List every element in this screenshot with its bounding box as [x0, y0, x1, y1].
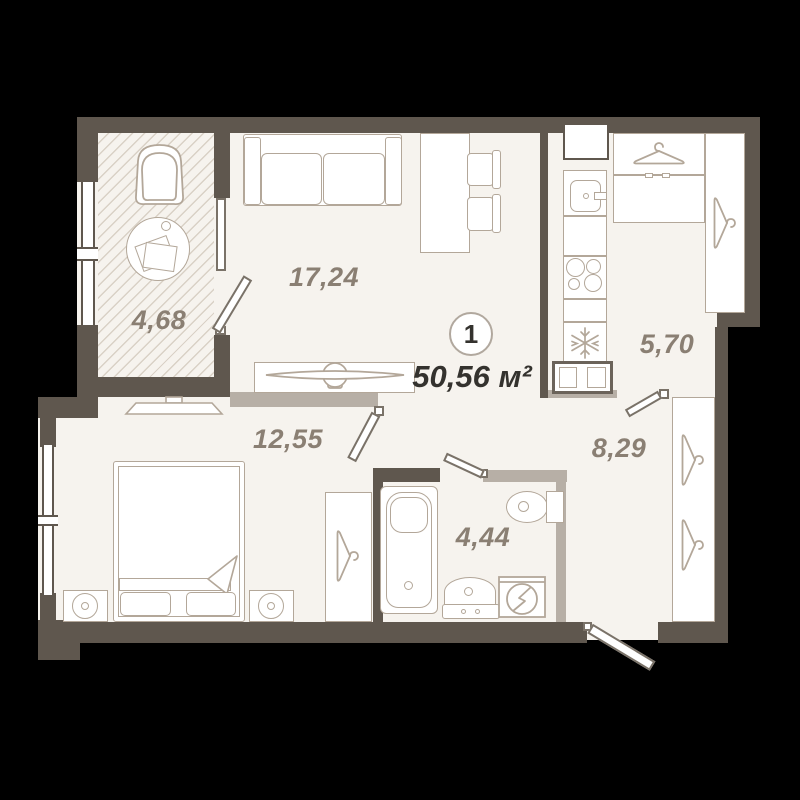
wall-top: [77, 117, 760, 133]
wall-bottom-a: [38, 622, 587, 643]
dining-chair-2-back: [492, 194, 501, 233]
wall-right-lower: [715, 327, 728, 640]
toilet-dot: [518, 501, 529, 512]
balcony-table-book-2: [142, 242, 177, 272]
bathroom-sink-base: [442, 604, 500, 619]
wall-balcony-left-a: [77, 133, 98, 182]
bedroom-window-divider: [38, 515, 58, 526]
stove-burner-2: [586, 259, 601, 274]
wall-bathroom-top-dark: [373, 468, 440, 482]
room-label-hallway: 8,29: [578, 432, 660, 464]
washing-machine: [498, 576, 546, 618]
balcony-window-divider: [77, 247, 98, 261]
hanger-icon: [679, 432, 707, 488]
blanket-fold: [196, 550, 242, 596]
dining-chair-2-seat: [467, 197, 494, 231]
sofa-cushion-left: [261, 153, 322, 205]
wall-right-step: [717, 311, 760, 327]
sofa-armrest-right: [385, 137, 402, 205]
wall-balcony-right-a: [214, 133, 230, 198]
hanger-icon: [679, 517, 707, 573]
partition-bathroom-top: [483, 470, 567, 482]
nightstand-left-lamp-dot: [81, 602, 89, 610]
partition-living-bedroom: [230, 392, 378, 407]
balcony-armchair: [127, 140, 192, 208]
dining-chair-1-back: [492, 150, 501, 189]
room-label-bedroom: 12,55: [245, 423, 331, 455]
sink-base-dot-2: [475, 609, 480, 614]
stove-burner-1: [566, 258, 585, 277]
hanger-icon: [334, 528, 362, 584]
balcony-table-dot: [161, 221, 171, 231]
dining-chair-1-seat: [467, 153, 494, 186]
bed-pillow-left: [120, 592, 171, 616]
floor-plan: 4,68 17,24 5,70 8,29 12,55 4,44 1 50,56 …: [0, 0, 800, 800]
bathroom-sink-dot: [464, 587, 473, 596]
room-label-bathroom: 4,44: [442, 521, 524, 553]
wall-right-top: [745, 117, 760, 327]
stove-burner-4: [584, 274, 602, 292]
bed-pillow-right: [186, 592, 236, 616]
hanger-icon: [631, 139, 687, 167]
kitchen-counter-2: [563, 299, 607, 322]
room-label-living: 17,24: [278, 261, 370, 293]
dining-table: [420, 133, 470, 253]
room-label-kitchen: 5,70: [626, 328, 708, 360]
wall-left-a: [40, 397, 56, 447]
apartment-number-badge: 1: [449, 312, 493, 356]
hallway-wardrobe: [672, 397, 715, 622]
sofa-armrest-left: [244, 137, 261, 205]
kitchen-top-cabinet: [613, 175, 705, 223]
hanger-icon: [711, 195, 739, 251]
wall-balcony-right-b: [214, 335, 230, 397]
wall-balcony-bottom: [77, 377, 230, 397]
sink-base-dot-1: [461, 609, 466, 614]
toilet-tank: [546, 491, 564, 523]
balcony-door-closed-leaf: [216, 198, 226, 271]
cabinet-handle-2: [662, 173, 670, 178]
kitchen-counter-1: [563, 216, 607, 256]
stove-burner-3: [568, 278, 580, 290]
cabinet-handle-1: [645, 173, 653, 178]
kitchen-faucet: [594, 192, 607, 200]
kitchen-faucet-dot: [583, 193, 589, 199]
bathtub-headrest: [390, 497, 428, 533]
bedroom-tv-icon: [124, 396, 224, 418]
snowflake-icon: [568, 326, 602, 360]
bathtub-drain: [404, 581, 413, 590]
sofa-cushion-right: [323, 153, 385, 205]
room-label-balcony: 4,68: [119, 304, 199, 336]
cabinet-panel-2: [587, 367, 606, 388]
total-area-label: 50,56 м²: [377, 359, 567, 395]
nightstand-right-lamp-dot: [267, 602, 275, 610]
vent-shaft: [563, 123, 609, 160]
